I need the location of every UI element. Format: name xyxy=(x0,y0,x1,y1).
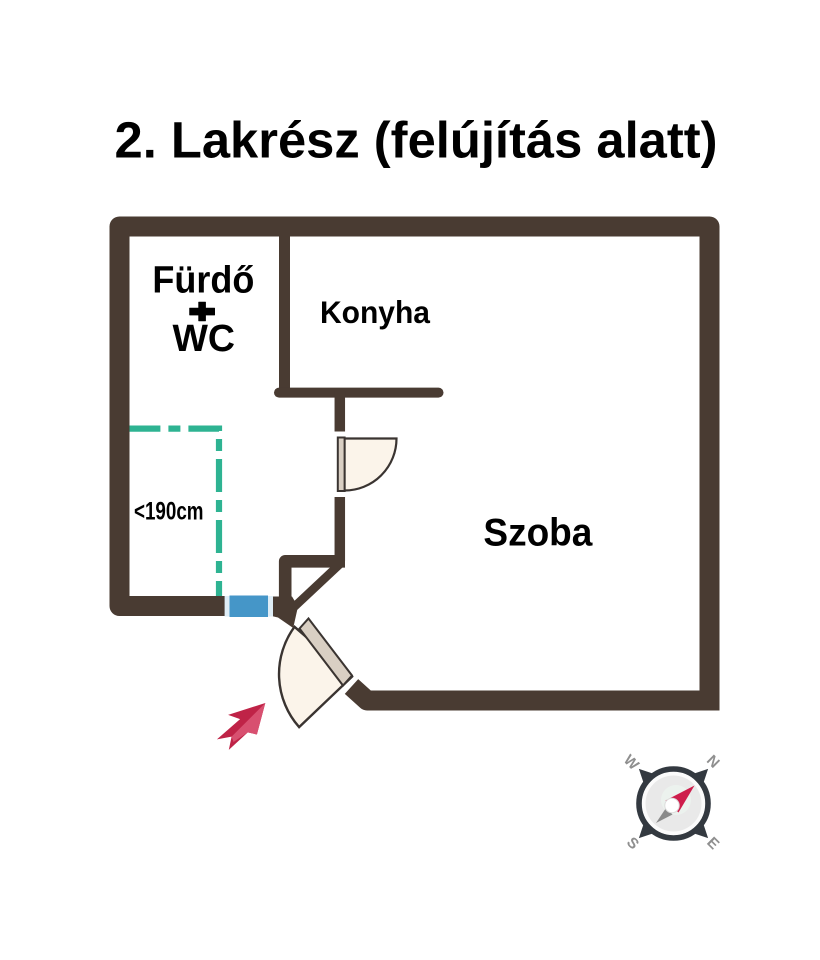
svg-text:WC: WC xyxy=(173,318,236,360)
svg-text:<190cm: <190cm xyxy=(134,497,204,525)
svg-text:Fürdő: Fürdő xyxy=(152,259,254,301)
svg-text:Konyha: Konyha xyxy=(320,295,431,330)
svg-text:Szoba: Szoba xyxy=(483,512,593,555)
svg-text:2. Lakrész (felújítás alatt): 2. Lakrész (felújítás alatt) xyxy=(115,111,718,168)
